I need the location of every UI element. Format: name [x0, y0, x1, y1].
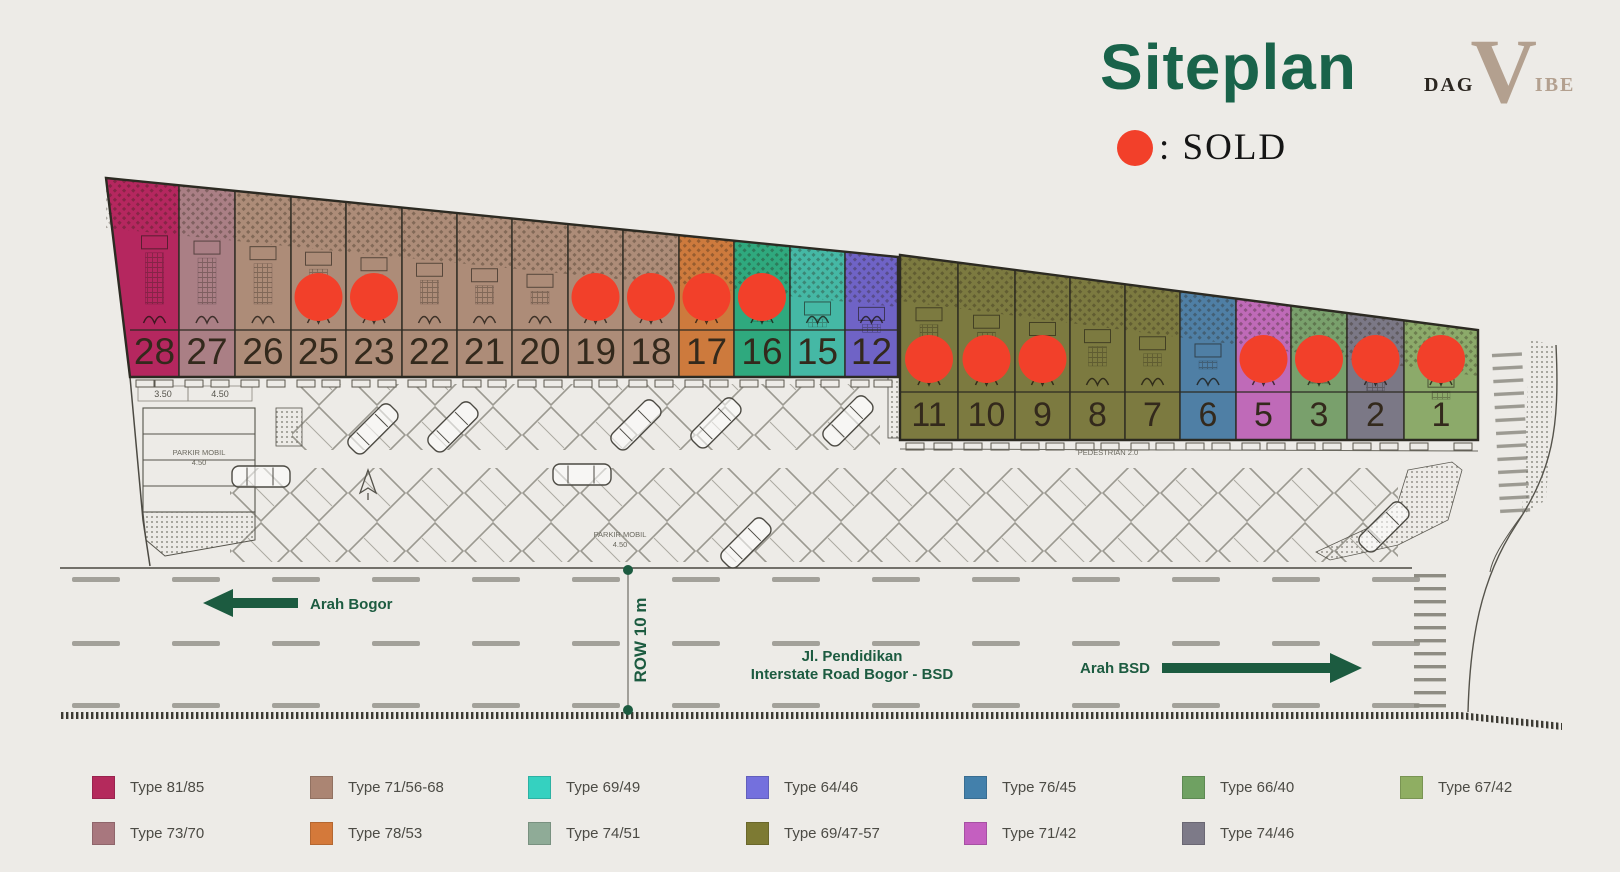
porch-step [378, 380, 396, 387]
porch-step [267, 380, 285, 387]
sold-marker [350, 273, 398, 321]
unit-number: 22 [409, 331, 450, 372]
porch-step [874, 380, 892, 387]
sold-marker-icon [1117, 130, 1153, 166]
stair-hatch [421, 280, 439, 304]
parkir-label: 4.50 [613, 540, 628, 549]
roof-hatch [568, 224, 623, 279]
unit-25[interactable]: 25 [291, 196, 346, 387]
sold-marker [1295, 335, 1343, 383]
porch-step [740, 380, 758, 387]
stair-hatch [254, 264, 272, 304]
legend-swatch [1400, 776, 1423, 799]
sold-marker [905, 335, 953, 383]
sold-marker [1240, 335, 1288, 383]
legend-label: Type 64/46 [784, 779, 858, 796]
arrow-right-icon [1162, 653, 1362, 683]
roof-hatch [457, 213, 512, 268]
legend-item: Type 74/46 [1182, 822, 1400, 845]
roof-hatch [845, 252, 898, 307]
unit-number: 21 [464, 331, 505, 372]
legend-item: Type 76/45 [964, 776, 1182, 799]
porch-step [1156, 443, 1174, 450]
legend-swatch [92, 822, 115, 845]
dim-label: 3.50 [154, 389, 172, 399]
pedestrian-crossing [1414, 572, 1446, 712]
page-title: Siteplan [1100, 30, 1357, 104]
sold-marker [572, 273, 620, 321]
roof-hatch [1015, 270, 1070, 323]
roof-hatch [512, 218, 568, 274]
legend-label: Type 71/42 [1002, 825, 1076, 842]
porch-step [488, 380, 506, 387]
legend-swatch [1182, 822, 1205, 845]
road: ROW 10 m Arah Bogor Arah BSD Jl. Pendidi… [60, 565, 1562, 730]
porch-step [1186, 443, 1204, 450]
porch-step [766, 380, 784, 387]
porch-step [544, 380, 562, 387]
unit-28[interactable]: 28 [106, 178, 179, 387]
hatch-wedge [276, 408, 302, 446]
porch-step [655, 380, 673, 387]
unit-27[interactable]: 27 [179, 185, 235, 387]
legend-swatch [528, 822, 551, 845]
legend-swatch [964, 776, 987, 799]
unit-number: 20 [519, 331, 560, 372]
porch-step [322, 380, 340, 387]
porch-step [599, 380, 617, 387]
porch-step [463, 380, 481, 387]
porch-step [851, 380, 869, 387]
legend-swatch [528, 776, 551, 799]
unit-19[interactable]: 19 [568, 224, 623, 387]
roof-hatch [402, 208, 457, 263]
unit-number: 18 [630, 331, 671, 372]
porch-step [1101, 443, 1119, 450]
unit-number: 19 [575, 331, 616, 372]
porch-step [821, 380, 839, 387]
legend-label: Type 74/51 [566, 825, 640, 842]
legend-item: Type 74/51 [528, 822, 746, 845]
stair-hatch [1199, 361, 1217, 369]
porch-step [1046, 443, 1064, 450]
street-name-line1: Jl. Pendidikan [802, 648, 903, 665]
roof-hatch [291, 196, 346, 251]
stair-hatch [1144, 354, 1162, 366]
roof-hatch [1070, 277, 1125, 330]
unit-number: 7 [1143, 396, 1162, 434]
porch-step [518, 380, 536, 387]
stair-hatch [531, 291, 549, 304]
porch-step [1131, 443, 1149, 450]
unit-number: 8 [1088, 396, 1107, 434]
porch-step [574, 380, 592, 387]
row-marker-dot [623, 565, 633, 575]
legend-label: Type 69/49 [566, 779, 640, 796]
porch-step [1410, 443, 1428, 450]
sold-marker [1019, 335, 1067, 383]
dimension-row: 3.50 4.50 [138, 386, 252, 401]
unit-number: 6 [1199, 396, 1218, 434]
sold-marker [1352, 335, 1400, 383]
unit-18[interactable]: 18 [623, 230, 679, 387]
legend-swatch [746, 776, 769, 799]
stair-hatch [146, 253, 164, 304]
siteplan-poster: 3.50 4.50 PARKIR MOBIL 4.50 PARKIR MOBIL… [0, 0, 1620, 872]
unit-number: 17 [686, 331, 727, 372]
unit-1[interactable]: 1 [1404, 320, 1478, 450]
unit-17[interactable]: 17 [679, 235, 734, 387]
parkir-label: PARKIR MOBIL [594, 530, 647, 539]
porch-step [352, 380, 370, 387]
legend-swatch [964, 822, 987, 845]
roof-hatch [346, 202, 402, 258]
block-a: 2827262523222120191817161512 [106, 178, 898, 387]
unit-number: 5 [1254, 396, 1273, 434]
porch-step [1323, 443, 1341, 450]
porch-step [1297, 443, 1315, 450]
legend-label: Type 78/53 [348, 825, 422, 842]
legend-label: Type 81/85 [130, 779, 204, 796]
legend-item: Type 78/53 [310, 822, 528, 845]
porch-step [408, 380, 426, 387]
legend-swatch [92, 776, 115, 799]
arrow-left-icon [203, 589, 298, 617]
porch-step [629, 380, 647, 387]
roof-hatch [958, 263, 1015, 316]
legend-swatch [310, 776, 333, 799]
sold-legend: : SOLD [1117, 126, 1287, 169]
row-width-label: ROW 10 m [631, 597, 650, 682]
sold-marker [683, 273, 731, 321]
legend-item: Type 67/42 [1400, 776, 1618, 799]
porch-step [297, 380, 315, 387]
legend-item: Type 66/40 [1182, 776, 1400, 799]
legend-swatch [1182, 776, 1205, 799]
legend-swatch [746, 822, 769, 845]
road-edge-bottom-slant [1460, 712, 1562, 730]
roof-hatch [106, 178, 179, 235]
direction-label-bogor: Arah Bogor [310, 596, 393, 613]
unit-number: 9 [1033, 396, 1052, 434]
unit-number: 2 [1366, 396, 1385, 434]
logo-text-ibe: IBE [1535, 74, 1575, 97]
unit-number: 11 [911, 396, 946, 434]
porch-step [136, 380, 154, 387]
stair-hatch [476, 286, 494, 304]
legend-label: Type 67/42 [1438, 779, 1512, 796]
legend-label: Type 66/40 [1220, 779, 1294, 796]
legend-item: Type 69/49 [528, 776, 746, 799]
parkir-label: 4.50 [192, 458, 207, 467]
unit-number: 16 [741, 331, 782, 372]
parkir-label: PARKIR MOBIL [173, 448, 226, 457]
siteplan-drawing: 3.50 4.50 PARKIR MOBIL 4.50 PARKIR MOBIL… [0, 0, 1620, 872]
legend-swatch [310, 822, 333, 845]
porch-step [685, 380, 703, 387]
porch-step [155, 380, 173, 387]
porch-step [185, 380, 203, 387]
unit-number: 28 [134, 331, 175, 372]
unit-number: 25 [298, 331, 339, 372]
road-edge-bottom [60, 712, 1460, 719]
lane-dashes [72, 577, 1420, 708]
parking-stalls-lower [230, 468, 1398, 562]
unit-8[interactable]: 8 [1070, 277, 1125, 450]
unit-15[interactable]: 15 [790, 246, 845, 387]
sold-marker [738, 273, 786, 321]
unit-number: 3 [1310, 396, 1329, 434]
sold-marker [1417, 335, 1465, 383]
stair-hatch [198, 258, 216, 304]
roof-hatch [1125, 284, 1180, 337]
roof-hatch [1180, 291, 1236, 344]
dago-vibe-logo: DAG V IBE [1424, 28, 1594, 114]
unit-16[interactable]: 16 [734, 241, 790, 387]
unit-number: 27 [186, 331, 227, 372]
unit-number: 26 [242, 331, 283, 372]
unit-20[interactable]: 20 [512, 218, 568, 387]
sold-marker [295, 273, 343, 321]
unit-10[interactable]: 10 [958, 263, 1015, 450]
porch-step [710, 380, 728, 387]
porch-step [211, 380, 229, 387]
unit-number: 15 [797, 331, 838, 372]
unit-22[interactable]: 22 [402, 208, 457, 387]
sold-marker [963, 335, 1011, 383]
roof-hatch [179, 185, 235, 241]
sold-legend-label: : SOLD [1159, 126, 1287, 169]
unit-12[interactable]: 12 [845, 252, 898, 387]
unit-21[interactable]: 21 [457, 213, 512, 387]
block-b: 111098765321 [900, 255, 1478, 451]
porch-step [1076, 443, 1094, 450]
unit-23[interactable]: 23 [346, 202, 402, 387]
legend-item: Type 71/56-68 [310, 776, 528, 799]
roof-hatch [790, 246, 845, 301]
sold-marker [627, 273, 675, 321]
type-legend: Type 81/85Type 71/56-68Type 69/49Type 64… [92, 764, 1618, 856]
legend-label: Type 74/46 [1220, 825, 1294, 842]
car-icon [553, 464, 611, 485]
legend-label: Type 71/56-68 [348, 779, 444, 796]
legend-item: Type 71/42 [964, 822, 1182, 845]
porch-step [1212, 443, 1230, 450]
porch-step [241, 380, 259, 387]
direction-label-bsd: Arah BSD [1080, 660, 1150, 677]
porch-step [1242, 443, 1260, 450]
unit-26[interactable]: 26 [235, 191, 291, 387]
logo-letter-v: V [1470, 28, 1536, 114]
dim-label: 4.50 [211, 389, 229, 399]
row-marker-dot [623, 705, 633, 715]
street-name-line2: Interstate Road Bogor - BSD [751, 666, 954, 683]
unit-number: 23 [353, 331, 394, 372]
porch-step [1353, 443, 1371, 450]
unit-2[interactable]: 2 [1347, 313, 1404, 450]
unit-11[interactable]: 11 [900, 255, 958, 450]
legend-item: Type 69/47-57 [746, 822, 964, 845]
unit-5[interactable]: 5 [1236, 299, 1291, 450]
unit-7[interactable]: 7 [1125, 284, 1180, 450]
unit-number: 12 [851, 331, 892, 372]
roof-hatch [900, 255, 958, 309]
roof-hatch [235, 191, 291, 247]
porch-step [1454, 443, 1472, 450]
porch-step [1267, 443, 1285, 450]
legend-label: Type 69/47-57 [784, 825, 880, 842]
porch-step [796, 380, 814, 387]
logo-text-dag: DAG [1424, 74, 1474, 97]
legend-item: Type 81/85 [92, 776, 310, 799]
unit-9[interactable]: 9 [1015, 270, 1070, 450]
unit-3[interactable]: 3 [1291, 306, 1347, 450]
legend-label: Type 76/45 [1002, 779, 1076, 796]
unit-6[interactable]: 6 [1180, 291, 1236, 450]
porch-step [433, 380, 451, 387]
porch-step [1380, 443, 1398, 450]
legend-item: Type 64/46 [746, 776, 964, 799]
legend-item: Type 73/70 [92, 822, 310, 845]
stair-hatch [1089, 347, 1107, 366]
unit-number: 1 [1432, 396, 1451, 434]
legend-label: Type 73/70 [130, 825, 204, 842]
unit-number: 10 [968, 396, 1006, 434]
car-icon [232, 466, 290, 487]
